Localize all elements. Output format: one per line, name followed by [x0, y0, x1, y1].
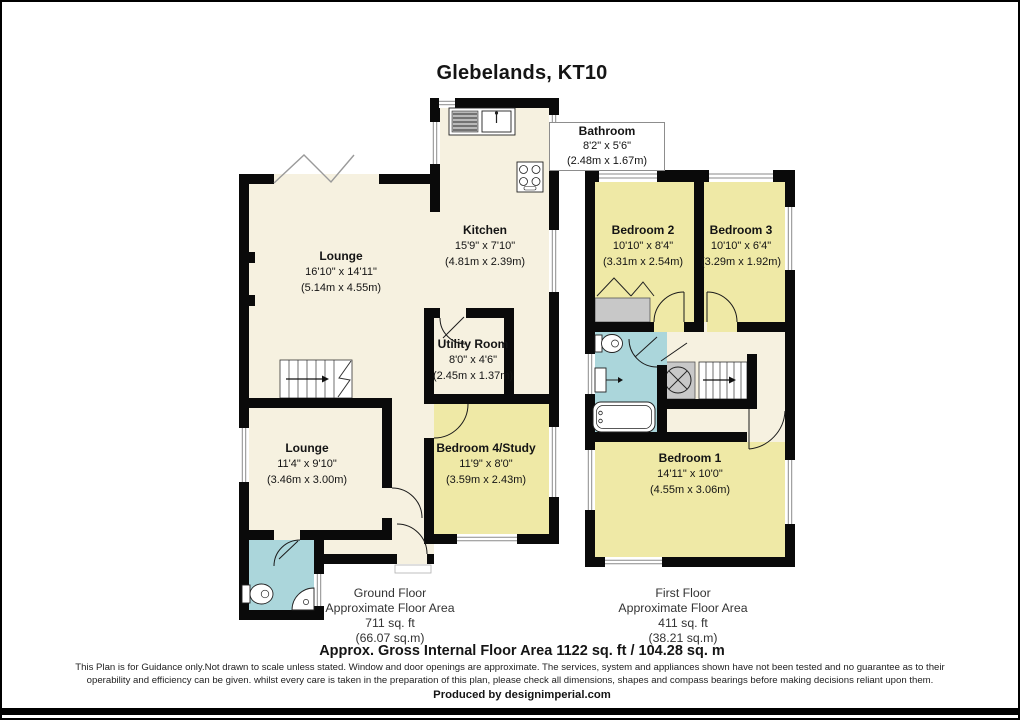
bathroom-toilet-icon	[595, 335, 623, 353]
room-size-metric: (3.46m x 3.00m)	[227, 472, 387, 488]
room-size-imperial: 16'10" x 14'11"	[261, 264, 421, 280]
disclaimer-line1: This Plan is for Guidance only.Not drawn…	[35, 661, 985, 674]
bottom-border-bar	[2, 708, 1018, 715]
room-size-imperial: 8'2" x 5'6"	[553, 139, 661, 154]
room-size-metric: (2.48m x 1.67m)	[553, 154, 661, 169]
bath-icon	[593, 402, 655, 432]
ground-floor-summary: Ground Floor Approximate Floor Area 711 …	[290, 586, 490, 646]
wc-toilet-icon	[242, 584, 273, 604]
room-name: Utility Room	[393, 336, 553, 352]
room-size-imperial: 8'0" x 4'6"	[393, 352, 553, 368]
bedroom3-label: Bedroom 3 10'10" x 6'4" (3.29m x 1.92m)	[661, 222, 821, 270]
room-size-imperial: 11'4" x 9'10"	[227, 456, 387, 472]
room-size-metric: (3.59m x 2.43m)	[406, 472, 566, 488]
entrance-step	[395, 565, 431, 573]
kitchen-label: Kitchen 15'9" x 7'10" (4.81m x 2.39m)	[405, 222, 565, 270]
stairs-first-floor-icon	[699, 362, 747, 399]
area-label: Approximate Floor Area	[290, 601, 490, 616]
kitchen-sink-icon	[449, 108, 515, 135]
first-floor-summary: First Floor Approximate Floor Area 411 s…	[583, 586, 783, 646]
room-size-imperial: 15'9" x 7'10"	[405, 238, 565, 254]
area-label: Approximate Floor Area	[583, 601, 783, 616]
room-size-metric: (2.45m x 1.37m)	[393, 368, 553, 384]
disclaimer-text: This Plan is for Guidance only.Not drawn…	[35, 661, 985, 687]
bedroom1-label: Bedroom 1 14'11" x 10'0" (4.55m x 3.06m)	[610, 450, 770, 498]
room-size-metric: (4.55m x 3.06m)	[610, 482, 770, 498]
stairs-ground-icon	[280, 360, 352, 398]
chimney-breast	[239, 252, 257, 306]
lounge-small-label: Lounge 11'4" x 9'10" (3.46m x 3.00m)	[227, 440, 387, 488]
room-name: Lounge	[227, 440, 387, 456]
room-name: Bedroom 4/Study	[406, 440, 566, 456]
hob-icon	[517, 162, 543, 192]
bedroom4-study-label: Bedroom 4/Study 11'9" x 8'0" (3.59m x 2.…	[406, 440, 566, 488]
bathroom-label: Bathroom 8'2" x 5'6" (2.48m x 1.67m)	[549, 122, 665, 171]
room-name: Bathroom	[553, 124, 661, 139]
utility-room-label: Utility Room 8'0" x 4'6" (2.45m x 1.37m)	[393, 336, 553, 384]
page-title: Glebelands, KT10	[22, 62, 1020, 85]
room-size-metric: (3.29m x 1.92m)	[661, 254, 821, 270]
total-floor-area: Approx. Gross Internal Floor Area 1122 s…	[22, 643, 1020, 659]
floor-name: Ground Floor	[290, 586, 490, 601]
room-size-imperial: 10'10" x 6'4"	[661, 238, 821, 254]
disclaimer-line2: operability and efficiency can be given.…	[35, 674, 985, 687]
room-size-metric: (5.14m x 4.55m)	[261, 280, 421, 296]
area-imperial: 711 sq. ft	[290, 616, 490, 631]
room-size-imperial: 14'11" x 10'0"	[610, 466, 770, 482]
floorplan-page: Glebelands, KT10 Kitchen 15'9" x 7'10" (…	[0, 0, 1020, 720]
room-name: Bedroom 3	[661, 222, 821, 238]
area-imperial: 411 sq. ft	[583, 616, 783, 631]
floor-name: First Floor	[583, 586, 783, 601]
room-name: Lounge	[261, 248, 421, 264]
lounge-main-label: Lounge 16'10" x 14'11" (5.14m x 4.55m)	[261, 248, 421, 296]
room-name: Bedroom 1	[610, 450, 770, 466]
produced-by-credit: Produced by designimperial.com	[22, 689, 1020, 701]
room-name: Kitchen	[405, 222, 565, 238]
room-size-metric: (4.81m x 2.39m)	[405, 254, 565, 270]
room-size-imperial: 11'9" x 8'0"	[406, 456, 566, 472]
